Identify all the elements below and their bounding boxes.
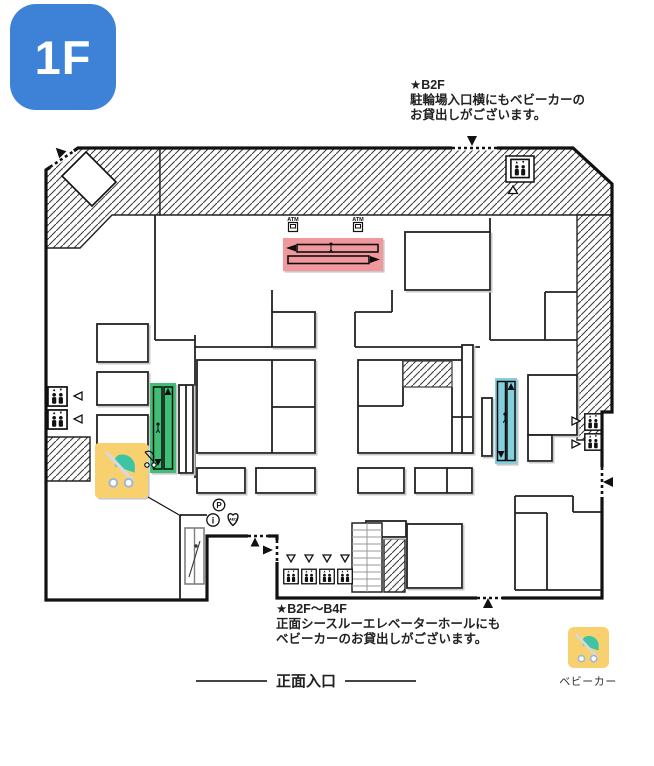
- note-line: 正面シースルーエレベーターホールにも: [276, 617, 500, 632]
- information-icon: i: [212, 516, 215, 526]
- room: [405, 232, 490, 290]
- stroller-rental-spot: [95, 443, 148, 498]
- stroller-legend-box: [568, 627, 609, 668]
- stroller-legend: ベビーカー: [548, 627, 628, 689]
- note-line: ★B2F: [410, 78, 585, 93]
- elevator-icon: [48, 410, 67, 429]
- elevator-icon: [48, 387, 67, 406]
- room: [256, 468, 315, 493]
- elevator-icon: [302, 569, 317, 584]
- stairs: [352, 523, 382, 592]
- corridor-walkway: [185, 528, 204, 584]
- entrance-line-right: [345, 680, 416, 682]
- room: [272, 312, 315, 347]
- note-b2f-bicycle: ★B2F 駐輪場入口横にもベビーカーの お貸出しがございます。: [410, 78, 585, 123]
- stroller-icon: [570, 630, 606, 666]
- note-line: お貸出しがございます。: [410, 108, 585, 123]
- atm-icon: ATM: [352, 217, 364, 232]
- note-line: ★B2F〜B4F: [276, 602, 500, 617]
- room: [97, 372, 148, 405]
- floor-badge: 1F: [10, 4, 116, 110]
- room: [462, 345, 473, 453]
- hatch-center-room: [403, 361, 452, 387]
- parking-icon: P: [216, 501, 222, 510]
- aed-label: AED: [229, 518, 237, 522]
- note-b2f-b4f-elevator: ★B2F〜B4F 正面シースルーエレベーターホールにも ベビーカーのお貸出しがご…: [276, 602, 500, 647]
- entrance-arrow-main-right: [263, 546, 273, 555]
- elevator-icon: [284, 569, 299, 584]
- room: [97, 415, 148, 445]
- elevator-icon: [320, 569, 335, 584]
- room: [482, 398, 492, 456]
- floor-map-page: ATM ATM P i AED 1F ★B2F 駐輪場入口横にもベビーカーの お…: [0, 0, 654, 766]
- room: [358, 468, 404, 493]
- entrance-label-text: 正面入口: [276, 670, 336, 691]
- elevator-icon: [585, 434, 601, 450]
- room: [528, 375, 577, 435]
- wall-top-band: [160, 148, 612, 215]
- escalator-zone-green: [150, 383, 176, 473]
- stroller-legend-label: ベビーカー: [548, 673, 628, 689]
- room: [197, 468, 245, 493]
- escalator-zone-teal: [495, 378, 517, 464]
- elevator-icon: [585, 414, 601, 430]
- main-entrance-label: 正面入口: [196, 670, 416, 691]
- note-line: 駐輪場入口横にもベビーカーの: [410, 93, 585, 108]
- note-line: ベビーカーのお貸出しがございます。: [276, 632, 500, 647]
- entrance-line-left: [196, 680, 267, 682]
- wall-right-band: [577, 215, 612, 440]
- floor-badge-label: 1F: [35, 30, 92, 85]
- room: [97, 324, 148, 362]
- escalator-zone-red: [283, 238, 383, 271]
- atm-icon: ATM: [287, 217, 299, 232]
- entrance-arrow-top: [467, 136, 477, 146]
- wall-left-block: [46, 437, 90, 481]
- elevator-icon: [511, 159, 529, 177]
- room: [528, 435, 552, 461]
- entrance-arrow-main-up: [251, 538, 260, 547]
- elevator-icon: [338, 569, 353, 584]
- room: [415, 468, 472, 493]
- room: [407, 524, 462, 588]
- wall-stairs-block: [384, 539, 405, 592]
